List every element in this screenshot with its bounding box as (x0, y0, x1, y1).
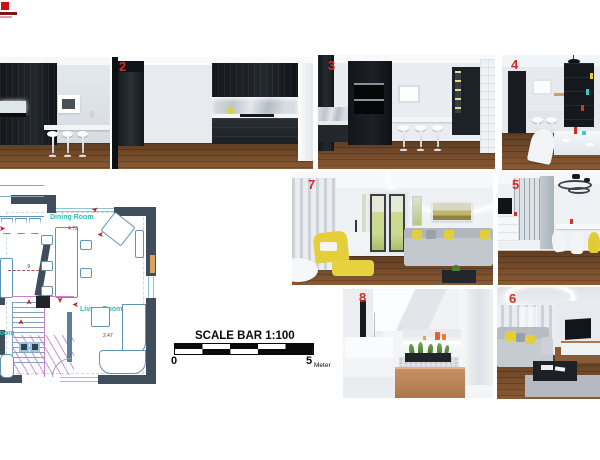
yellow-pillow (480, 230, 490, 239)
table-decor (570, 219, 573, 224)
chair-plan (80, 268, 92, 278)
landscape-painting (432, 202, 472, 221)
orange-bottle (423, 336, 426, 340)
render-number: 6 (509, 292, 516, 305)
logo-pink-bar (0, 16, 12, 18)
render-number: 7 (308, 178, 315, 191)
yellow-pillow (444, 230, 454, 239)
oven-lower (354, 99, 384, 114)
vase-branch (355, 220, 357, 232)
upper-cabinets (212, 63, 298, 97)
render-living-7: 7 (292, 172, 493, 285)
render-number: 8 (359, 291, 366, 304)
sofa-plan (99, 350, 146, 374)
render-living-6: 6 (497, 287, 600, 399)
kitchen-appliance-plan (0, 258, 13, 298)
yellow-pillow (505, 331, 516, 341)
bar-stool (77, 131, 88, 157)
window-lines (56, 211, 114, 212)
wall (98, 375, 156, 384)
vase (90, 111, 94, 118)
scale-bar: SCALE BAR 1:100 0 5 Meter (172, 329, 342, 373)
scale-bar-title: SCALE BAR 1:100 (195, 330, 295, 342)
pendant-cylinder (572, 174, 580, 179)
camera-arrow-icon: ➤ (0, 225, 6, 233)
scale-bar-start: 0 (171, 355, 177, 367)
window-lines (60, 381, 98, 382)
wood-floor (112, 143, 313, 169)
tv-console (561, 341, 600, 355)
red-decor (514, 212, 517, 216)
chair-plan (80, 240, 92, 250)
scale-bar-row (175, 349, 313, 354)
door-glass (370, 194, 386, 252)
sofa-arm (541, 337, 553, 355)
floor-plan: Dining Room 4.73 .9 Living Room 2.47 roo… (0, 180, 168, 392)
wood-box (395, 367, 465, 398)
coffee-table (442, 270, 476, 283)
camera-arrow-icon: ➤ (72, 300, 79, 308)
window-lines (148, 276, 149, 298)
camera-arrow-icon: ➤ (55, 297, 63, 304)
dimension-label: .9 (26, 265, 30, 270)
tv (498, 198, 512, 214)
dimension-label: 4.73 (68, 227, 78, 232)
camera-arrow-icon: ➤ (25, 299, 33, 306)
render-living-5: 5 (498, 172, 600, 285)
yellow-chaise (332, 260, 374, 276)
ceiling (318, 55, 495, 63)
tub-plan (0, 354, 14, 378)
gray-pillow (426, 230, 436, 239)
tv-plan (36, 296, 50, 308)
scale-bar-end: 5 (306, 355, 312, 367)
cup (582, 131, 586, 135)
room-label-dining: Dining Room (50, 214, 94, 221)
kettle (228, 107, 233, 114)
render-planter-8: 8 (343, 289, 493, 398)
bar-stool (62, 131, 73, 157)
render-number: 4 (511, 58, 518, 71)
marble-backsplash (212, 97, 298, 114)
planter-tray (405, 353, 451, 362)
small-window (412, 196, 422, 226)
logo-red-square (1, 2, 9, 10)
coffee-table-plan (91, 307, 110, 327)
dining-table-plan (55, 227, 78, 298)
render-kitchen-3: 3 (318, 55, 495, 169)
bench (343, 337, 395, 363)
orange-bottle (442, 334, 446, 340)
wood-platform (498, 250, 600, 285)
yellow-pillow (525, 335, 535, 344)
wall (146, 298, 156, 375)
cooktop (240, 114, 274, 117)
camera-arrow-icon: ➤ (97, 230, 104, 238)
bottle (590, 73, 593, 79)
wood-door-strip (150, 255, 155, 273)
bar-stool (398, 125, 409, 151)
marble-backsplash (318, 107, 348, 121)
platform-edge (498, 249, 600, 251)
tv-wall-plan (67, 312, 72, 362)
ring-pendant (568, 187, 590, 194)
side-table-plan (135, 230, 144, 258)
white-pillow (320, 242, 337, 251)
render-kitchen-4: 4 (502, 55, 600, 170)
ledge (403, 329, 461, 341)
washer-plan (30, 342, 40, 352)
wall (142, 65, 214, 145)
render-kitchen-2: 2 (112, 57, 313, 169)
lit-shelves (455, 71, 461, 113)
scale-bar-checker (174, 343, 314, 355)
counter-edge (0, 216, 44, 217)
base-cabinet (318, 125, 348, 142)
door-glass (389, 194, 405, 252)
oven-upper (354, 83, 384, 99)
yellow-chair (588, 232, 600, 253)
pendant-cylinder (584, 178, 590, 182)
coffee-table (533, 361, 577, 381)
window (532, 79, 552, 95)
presentation-board: 2 3 4 (0, 0, 600, 460)
bottle (581, 105, 584, 111)
bottle (586, 89, 589, 95)
window-lines (60, 377, 98, 378)
wall (47, 202, 56, 213)
sofa-plan (122, 304, 146, 356)
dimension-label: 2.47 (103, 334, 113, 339)
yellow-pillow (412, 230, 422, 239)
french-door (368, 192, 408, 254)
bottle (574, 127, 577, 134)
black-panel (508, 71, 526, 133)
tile-wall (480, 59, 495, 153)
dining-chair (570, 232, 584, 254)
sloped-ceiling (373, 289, 458, 331)
white-door-panel (465, 289, 493, 385)
sofa-seat (404, 238, 493, 266)
window (398, 85, 420, 103)
render-number: 5 (512, 178, 519, 191)
dining-table (556, 224, 600, 229)
tray (541, 365, 553, 370)
camera-arrow-icon: ➤ (17, 319, 25, 326)
counter (0, 113, 26, 117)
fireplace-inset (62, 99, 75, 109)
base-cabinets (212, 118, 298, 144)
kitchen-counter-plan (0, 185, 44, 197)
lit-backsplash (0, 101, 26, 113)
logo-dark-bar (0, 12, 17, 15)
bar-stool (432, 125, 443, 151)
plate (562, 139, 570, 142)
fridge (118, 72, 144, 146)
dining-chair (551, 229, 568, 253)
table-plant (452, 265, 460, 271)
bar-stool (415, 125, 426, 151)
window-lines (56, 208, 114, 209)
radiator (360, 300, 366, 340)
plate (586, 143, 594, 146)
tv (565, 318, 591, 340)
orange-bottle (435, 332, 440, 340)
bar-stool (47, 131, 58, 157)
chair-plan (41, 286, 53, 296)
gray-pillow (516, 333, 525, 342)
scale-bar-unit: Meter (314, 362, 331, 369)
render-kitchen-1 (0, 57, 110, 169)
sideboard (348, 232, 370, 252)
window-lines (153, 276, 154, 298)
dimension-line (8, 270, 44, 271)
logo-fragment (0, 0, 24, 20)
bar-counter (44, 125, 110, 130)
render-number: 2 (119, 60, 126, 73)
washer-plan (19, 342, 29, 352)
chair-plan (41, 235, 53, 245)
render-number: 3 (328, 59, 335, 72)
white-column (298, 63, 313, 161)
tv-cabinet (498, 216, 518, 242)
